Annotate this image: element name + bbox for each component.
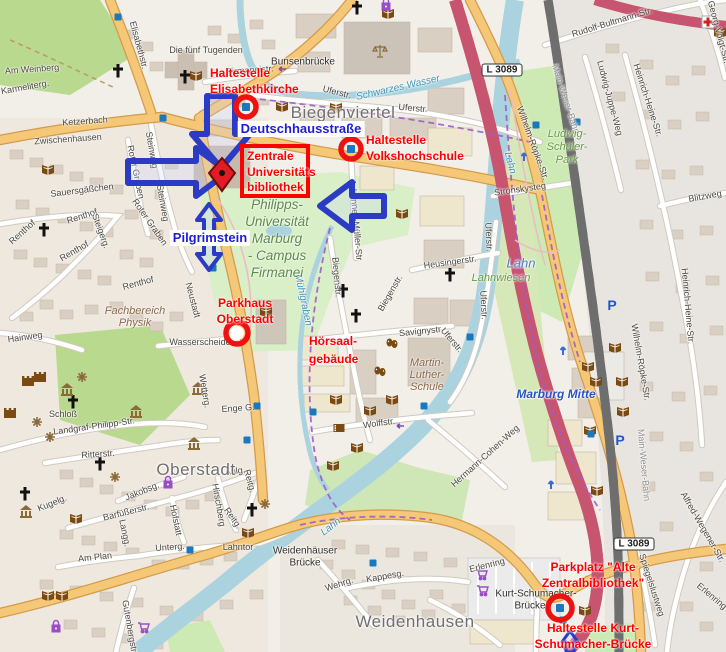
annotation-deutschhausstrasse: Deutschhausstraße bbox=[238, 121, 365, 137]
annotation-stop-elisabethkirche: HaltestelleElisabethkirche bbox=[210, 66, 299, 97]
annotation-hoersaalgebaeude: Hörsaal-gebäude bbox=[309, 332, 358, 368]
annotation-labels-layer: HaltestelleElisabethkircheZentraleUniver… bbox=[0, 0, 726, 652]
annotation-stop-kurt-schumacher: Haltestelle Kurt-Schumacher-Brücke bbox=[535, 621, 652, 652]
map-canvas[interactable]: PP Elisabethstr.Am WeinbergKarmeliterg.K… bbox=[0, 0, 726, 652]
annotation-pilgrimstein: Pilgrimstein bbox=[170, 230, 250, 246]
annotation-parkhaus-oberstadt: ParkhausOberstadt bbox=[217, 296, 274, 327]
annotation-stop-volkshochschule: HaltestelleVolkshochschule bbox=[366, 133, 464, 164]
annotation-library-target: ZentraleUniversitätsbibliothek bbox=[247, 149, 316, 196]
annotation-parkplatz-alte-zb: Parkplatz "AlteZentralbibliothek" bbox=[542, 560, 644, 591]
